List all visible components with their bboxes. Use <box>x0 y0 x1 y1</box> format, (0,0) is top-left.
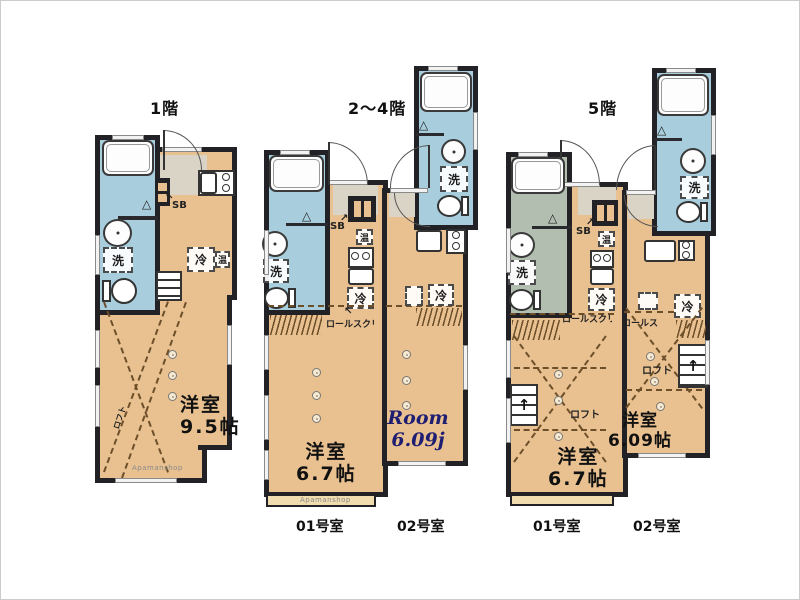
plan2-unit01-number: 01号室 <box>296 516 343 536</box>
plan2-unit01-room-name: 洋室 <box>296 441 357 463</box>
plan3-unit01-balcony <box>510 494 614 506</box>
plan1-stove-burner1-icon <box>222 173 230 181</box>
plan2-unit01-watermark: Apamanshop <box>300 496 351 504</box>
floorplan-canvas: 1階 △ 洗 ↖ SB 冷 温 ロフト 洋室 9.5帖 Apamanshop 2… <box>0 0 800 600</box>
plan2-unit01-shoebox-label: SB <box>330 221 345 232</box>
plan3-unit01-bathtub <box>511 157 565 194</box>
plan3-unit02-window-bath-top <box>666 68 696 73</box>
plan3-unit01-door-arc <box>560 140 600 185</box>
plan2-unit02-room-size: 6.09j <box>385 430 451 452</box>
plan3-unit01-window-left2 <box>506 398 511 443</box>
plan1-window-right <box>227 325 232 365</box>
plan3-unit01-heater-box: 温 <box>598 231 615 247</box>
plan1-window-bath-top <box>112 135 144 140</box>
plan3-unit01-bath-partition <box>532 226 572 229</box>
plan2-unit02-door-leaf <box>428 145 430 188</box>
plan1-room-name: 洋室 <box>180 394 241 416</box>
plan3-unit02-door-leaf <box>654 145 656 190</box>
plan3-unit02-window-bath-right <box>711 115 716 155</box>
plan3-unit01-window-left1 <box>506 340 511 378</box>
plan1-entry-door-arc <box>163 130 202 170</box>
plan3-unit01-burner2-icon <box>603 254 611 262</box>
plan3-unit02-room-name: 洋室 <box>608 411 672 431</box>
plan3-unit02-room-label: 洋室 6.09帖 <box>608 411 672 451</box>
plan3-unit02-washer-box: 洗 <box>680 176 709 199</box>
plan2-unit02-bathtub <box>420 72 472 112</box>
plan3-unit02-burner2-icon <box>682 251 690 259</box>
plan3-unit02-toilet-bowl <box>676 201 701 223</box>
plan2-unit02-window-bath-right <box>473 112 478 150</box>
plan1-fridge-box: 冷 <box>187 247 215 272</box>
plan3-unit02-burner1-icon <box>682 241 690 249</box>
plan3-unit02-closet-box <box>638 292 658 310</box>
plan3-unit01-downlight3-icon <box>554 432 563 441</box>
plan2-unit01-bath-partition <box>286 223 328 226</box>
plan2-unit01-window-bath-top <box>280 150 310 155</box>
plan3-unit01-burner1-icon <box>593 254 601 262</box>
plan2-unit01-rollscreen-arrow-icon: ↖ <box>344 307 352 317</box>
plan3-unit02-downlight1-icon <box>646 352 655 361</box>
plan2-unit02-sink <box>441 139 466 164</box>
plan3-unit01-fridge-box: 冷 <box>588 288 615 311</box>
plan3-unit01-loft-label: ロフト <box>570 406 600 421</box>
plan2-unit02-window-right <box>463 345 468 390</box>
plan3-unit01-room-size: 6.7帖 <box>548 468 609 490</box>
plan3-unit01-toilet-tank <box>533 290 541 310</box>
plan3-unit01-shower-triangle-icon: △ <box>548 212 557 224</box>
plan2-unit01-door-leaf <box>328 142 330 185</box>
plan3-unit01-room-name: 洋室 <box>548 446 609 468</box>
plan2-unit02-shower-triangle-icon: △ <box>419 119 428 131</box>
plan2-unit02-toilet-tank <box>461 196 469 216</box>
plan3-unit01-washer-box: 洗 <box>508 260 536 285</box>
plan1-washer-box: 洗 <box>103 247 133 273</box>
plan2-unit02-room-label: Room 6.09j <box>385 408 451 452</box>
plan2-unit01-downlight3-icon <box>312 414 321 423</box>
plan2-unit01-loft-ladder-hatch <box>270 315 322 335</box>
plan2-unit01-heater-box: 温 <box>356 229 373 245</box>
plan3-unit01-sink <box>508 232 535 258</box>
plan1-watermark: Apamanshop <box>132 464 183 472</box>
plan3-unit02-door-arc <box>616 145 656 190</box>
plan3-unit01-kitchen-sink <box>590 268 614 285</box>
plan1-toilet-tank <box>102 280 111 302</box>
plan1-window-left1 <box>95 330 100 368</box>
plan2-unit01-room-size: 6.7帖 <box>296 463 357 485</box>
plan2-unit02-burner1-icon <box>452 231 460 239</box>
plan1-sink <box>103 219 132 247</box>
plan3-unit01-shoebox-label: SB <box>576 226 591 237</box>
plan3-unit01-toilet-bowl <box>509 289 534 311</box>
plan2-unit02-fridge-box: 冷 <box>428 284 454 306</box>
plan1-bathtub <box>102 140 154 176</box>
plan2-unit01-shower-triangle-icon: △ <box>302 210 311 222</box>
plan1-window-bottom <box>115 478 177 483</box>
plan1-downlight2-icon <box>168 371 177 380</box>
plan2-unit02-window-bottom <box>398 461 446 466</box>
plan2-unit02-door-arc <box>390 145 430 188</box>
plan3-unit02-room-size: 6.09帖 <box>608 431 672 451</box>
plan2-unit01-burner1-icon <box>351 252 359 260</box>
plan2-unit01-rollscreen-label: ロールスクリーン <box>326 317 374 330</box>
plan2-title: 2〜4階 <box>348 95 406 119</box>
plan3-unit01-number: 01号室 <box>533 516 580 536</box>
plan2-unit02-room-name: Room <box>385 408 451 430</box>
plan3-unit01-ladder-arrow-icon: ↑ <box>518 396 531 414</box>
plan3-title: 5階 <box>588 95 617 119</box>
plan1-room-size: 9.5帖 <box>180 416 241 438</box>
plan3-unit02-loft-dashH <box>626 389 702 391</box>
plan2-unit02-washer-box: 洗 <box>440 166 468 192</box>
plan1-downlight1-icon <box>168 350 177 359</box>
plan3-unit01-loft-ladder: ↑ <box>510 384 538 426</box>
plan1-window-left2 <box>95 385 100 427</box>
plan1-title: 1階 <box>150 95 179 119</box>
plan2-unit02-window-bath-top <box>428 66 458 71</box>
plan3-unit02-bathtub <box>657 74 709 116</box>
plan1-toilet-bowl <box>111 278 137 304</box>
plan1-entry-door-leaf <box>163 130 165 170</box>
plan1-stairs <box>156 271 182 301</box>
plan2-unit01-window-left3 <box>264 450 269 480</box>
plan2-unit01-rollscreen-line <box>268 305 374 307</box>
plan2-unit02-burner2-icon <box>452 242 460 250</box>
plan1-shower-triangle-icon: △ <box>142 198 151 210</box>
plan3-unit02-downlight2-icon <box>650 377 659 386</box>
plan3-unit01-downlight2-icon <box>554 396 563 405</box>
plan1-shoebox-label: SB <box>172 200 187 211</box>
plan3-unit01-window-bath-left <box>506 228 511 273</box>
plan1-bath-partition <box>118 216 158 220</box>
plan2-unit01-burner2-icon <box>362 252 370 260</box>
plan3-unit02-number: 02号室 <box>633 516 680 536</box>
plan1-downlight3-icon <box>168 392 177 401</box>
plan3-unit02-downlight3-icon <box>656 402 665 411</box>
plan2-unit02-closet-box <box>405 286 423 306</box>
plan2-unit01-shoebox <box>348 196 376 222</box>
plan3-unit01-loft-dashH1 <box>514 367 606 369</box>
plan3-unit02-loft-label: ロフト <box>642 362 672 377</box>
plan3-unit02-window-bottom <box>638 453 686 458</box>
plan2-unit01-kitchen-sink <box>348 268 374 285</box>
plan2-unit01-door-arc <box>328 142 368 185</box>
plan2-unit01-downlight1-icon <box>312 368 321 377</box>
plan2-unit02-number: 02号室 <box>397 516 444 536</box>
plan2-unit01-window-left2 <box>264 395 269 440</box>
plan3-unit02-toilet-tank <box>700 202 708 222</box>
plan1-kitchen-sink <box>200 172 217 194</box>
plan3-unit01-rollscreen-label: ロールスクリーン <box>562 312 612 325</box>
plan2-unit02-downlight2-icon <box>402 376 411 385</box>
plan3-unit01-shoebox <box>592 200 618 226</box>
plan1-stove-burner2-icon <box>222 184 230 192</box>
plan3-unit02-shower-triangle-icon: △ <box>657 124 666 136</box>
plan1-window-bath-left <box>95 235 100 275</box>
plan3-unit01-downlight1-icon <box>554 370 563 379</box>
plan2-unit01-downlight2-icon <box>312 391 321 400</box>
plan3-unit01-loft-ladder-hatch <box>512 320 560 340</box>
plan2-unit01-room-label: 洋室 6.7帖 <box>296 441 357 486</box>
plan3-unit01-room-label: 洋室 6.7帖 <box>548 446 609 491</box>
plan2-unit01-bathtub <box>269 155 324 192</box>
plan1-room-label: 洋室 9.5帖 <box>180 394 241 439</box>
plan3-unit01-loft-dashH2 <box>514 429 606 431</box>
plan3-unit02-bath-partition <box>654 138 682 141</box>
plan2-unit01-window-bath-left <box>264 230 269 275</box>
plan2-unit02-downlight1-icon <box>402 350 411 359</box>
plan3-unit02-kitchen-sink <box>644 240 676 262</box>
plan2-unit02-toilet-bowl <box>437 195 462 217</box>
plan2-unit02-bath-partition <box>416 133 444 136</box>
plan3-unit01-window-bath-top <box>518 152 548 157</box>
plan2-unit02-loft-ladder-hatch <box>416 308 462 326</box>
plan3-unit02-window-right <box>705 340 710 385</box>
plan3-unit02-sink <box>680 148 706 174</box>
plan2-unit02-kitchen-sink <box>416 230 442 252</box>
plan3-unit02-ladder-arrow-icon: ↑ <box>687 357 700 375</box>
plan2-unit01-window-left1 <box>264 335 269 370</box>
plan3-unit02-loft-ladder: ↑ <box>678 344 708 388</box>
plan1-heater-box: 温 <box>215 251 230 268</box>
